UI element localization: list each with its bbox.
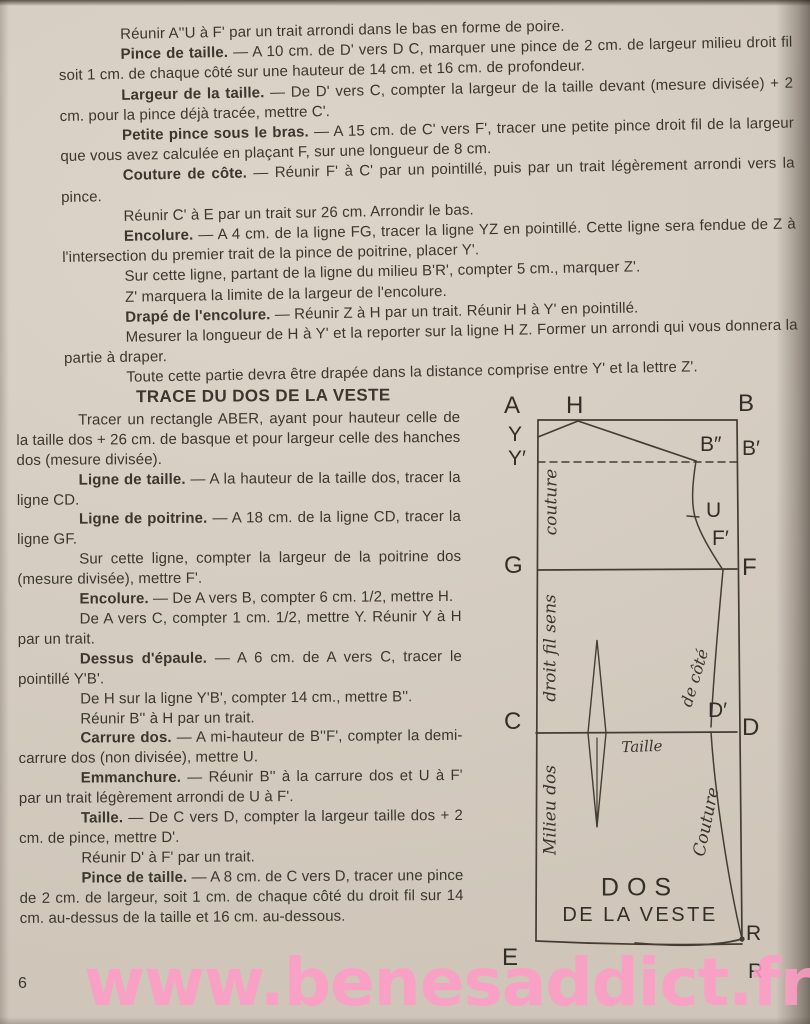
diagram-label-B-prime: B′: [742, 438, 760, 459]
diagram-label-A: A: [504, 394, 520, 418]
shoulder-line-YHB: [538, 421, 696, 461]
diagram-caption-line2: DE LA VESTE: [562, 905, 717, 925]
left-column-text-block: TRACE DU DOS DE LA VESTE Tracer un recta…: [16, 385, 464, 929]
scan-edge-left: [0, 0, 9, 1024]
paragraph-text: Sur cette ligne, compter la largeur de l…: [17, 548, 461, 588]
paragraph-lead: Drapé de l'encolure.: [125, 306, 270, 326]
diagram-label-B: B: [738, 392, 754, 416]
waist-line-CD: [536, 732, 737, 733]
annotation-grainline: droit fil sens: [543, 594, 560, 702]
paragraph-text: Tracer un rectangle ABER, ayant pour hau…: [16, 409, 460, 469]
left-paragraph-0: Tracer un rectangle ABER, ayant pour hau…: [16, 408, 460, 471]
left-paragraph-9: Carrure dos. — A mi-hauteur de B''F', co…: [18, 726, 462, 769]
paragraph-lead: Emmanchure.: [81, 769, 181, 787]
left-paragraph-3: Sur cette ligne, compter la largeur de l…: [17, 547, 461, 590]
left-paragraph-10: Emmanchure. — Réunir B'' à la carrure do…: [19, 766, 463, 809]
diagram-label-B-double-prime: B″: [700, 434, 721, 455]
scan-edge-top: [0, 0, 810, 6]
paragraph-lead: Taille.: [81, 809, 123, 826]
watermark: www.benesaddict.fr: [84, 944, 810, 1021]
u-tick: [687, 516, 699, 517]
diagram-label-U: U: [706, 500, 721, 521]
paragraph-text: De A vers C, compter 1 cm. 1/2, mettre Y…: [18, 608, 462, 648]
annotation-waist: Taille: [621, 739, 663, 755]
diagram-label-R-top: R: [746, 923, 761, 944]
paragraph-lead: Largeur de la taille.: [121, 84, 265, 104]
left-paragraph-11: Taille. — De C vers D, compter la largeu…: [19, 806, 463, 849]
section-heading: TRACE DU DOS DE LA VESTE: [16, 385, 460, 408]
annotation-seam-left: couture: [544, 469, 561, 536]
diagram-label-F: F: [742, 556, 757, 580]
paragraph-text: Réunir B'' à H par un trait.: [80, 709, 255, 727]
left-paragraph-7: De H sur la ligne Y'B', compter 14 cm., …: [18, 686, 462, 709]
chest-line-GF: [538, 569, 737, 570]
left-paragraph-2: Ligne de poitrine. — A 18 cm. de la lign…: [17, 507, 461, 550]
left-paragraph-6: Dessus d'épaule. — A 6 cm. de A vers C, …: [18, 647, 462, 690]
diagram-label-F-prime: F′: [712, 528, 729, 549]
paragraph-lead: Pince de taille.: [81, 869, 187, 887]
paragraph-lead: Pince de taille.: [120, 44, 228, 63]
diagram-caption-line1: DOS: [601, 876, 679, 901]
diagram-label-D-prime: D′: [708, 700, 727, 721]
left-paragraph-5: De A vers C, compter 1 cm. 1/2, mettre Y…: [18, 607, 462, 650]
point-R-dot: [739, 936, 744, 941]
paragraph-lead: Dessus d'épaule.: [80, 649, 207, 667]
page-number: 6: [18, 975, 27, 993]
diagram-label-Y-prime: Y′: [508, 448, 526, 469]
paragraph-text: — De A vers B, compter 6 cm. 1/2, mettre…: [153, 588, 453, 607]
paragraph-text: De H sur la ligne Y'B', compter 14 cm., …: [80, 688, 412, 707]
diagram-label-C: C: [504, 710, 521, 734]
intro-text-block: Réunir A''U à F' par un trait arrondi da…: [58, 13, 799, 390]
paragraph-lead: Petite pince sous le bras.: [122, 123, 309, 143]
left-paragraph-13: Pince de taille. — A 8 cm. de C vers D, …: [19, 866, 463, 929]
paragraph-lead: Couture de côte.: [123, 165, 248, 184]
pattern-diagram: A H B Y Y′ B″ B′ G U F′ F C D′ D E R R c…: [490, 390, 802, 1024]
diagram-label-G: G: [504, 554, 523, 578]
paragraph-text: Réunir D' à F' par un trait.: [81, 848, 255, 866]
rect-left-edge: [536, 420, 538, 941]
paragraph-lead: Ligne de taille.: [79, 470, 186, 488]
paragraph-lead: Ligne de poitrine.: [79, 510, 208, 528]
paragraph-lead: Encolure.: [124, 227, 194, 245]
left-paragraph-1: Ligne de taille. — A la hauteur de la ta…: [17, 468, 461, 511]
diagram-label-Y: Y: [508, 424, 522, 445]
rect-right-edge: [737, 420, 742, 941]
diagram-label-D: D: [742, 716, 759, 740]
paragraph-lead: Encolure.: [79, 590, 148, 607]
annotation-center-back: Milieu dos: [543, 765, 560, 855]
paragraph-lead: Carrure dos.: [80, 729, 171, 747]
diagram-label-H: H: [566, 394, 583, 418]
